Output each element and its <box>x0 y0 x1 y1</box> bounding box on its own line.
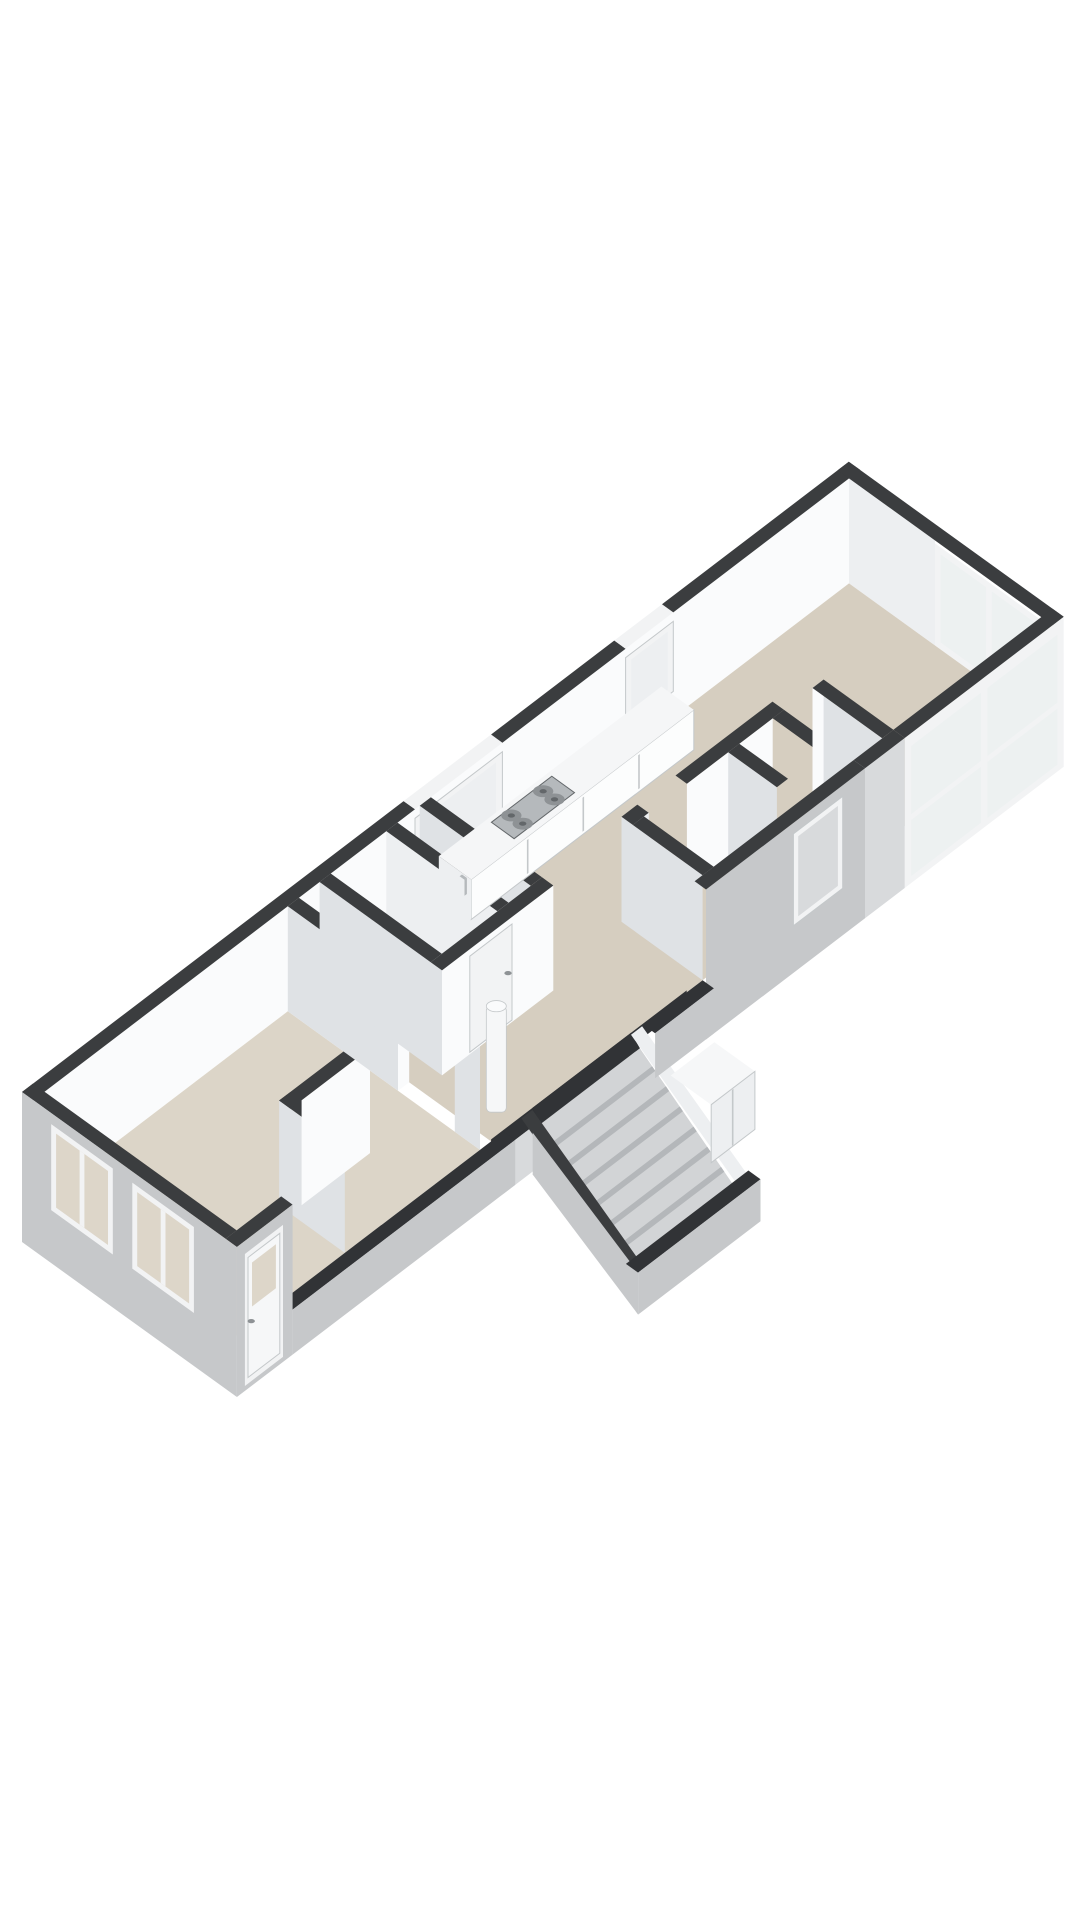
hall-column-top <box>486 1001 506 1012</box>
bathroom-door-handle <box>504 971 511 975</box>
floorplan-3d-render <box>0 0 1080 1920</box>
cooktop-burner-center-2 <box>519 822 526 826</box>
se-wall-segment-face <box>865 738 905 918</box>
cooktop-burner-center-1 <box>508 813 515 817</box>
cooktop-burner-center-4 <box>551 797 558 801</box>
kitchen-faucet <box>465 878 467 896</box>
hall-column <box>486 1006 506 1112</box>
entry-cabinet-seam <box>732 1089 734 1146</box>
front-door-handle <box>248 1319 255 1323</box>
kitchen-counter-seam-2 <box>583 797 585 832</box>
floorplan-page <box>0 0 1080 1920</box>
kitchen-counter-seam-3 <box>638 754 640 789</box>
sw-window-2-mullion <box>161 1209 166 1287</box>
kitchen-counter-seam-1 <box>527 839 529 874</box>
balcony-wall-jamb <box>813 680 824 794</box>
sw-window-1-mullion <box>80 1151 85 1229</box>
cooktop-burner-center-3 <box>540 789 547 793</box>
